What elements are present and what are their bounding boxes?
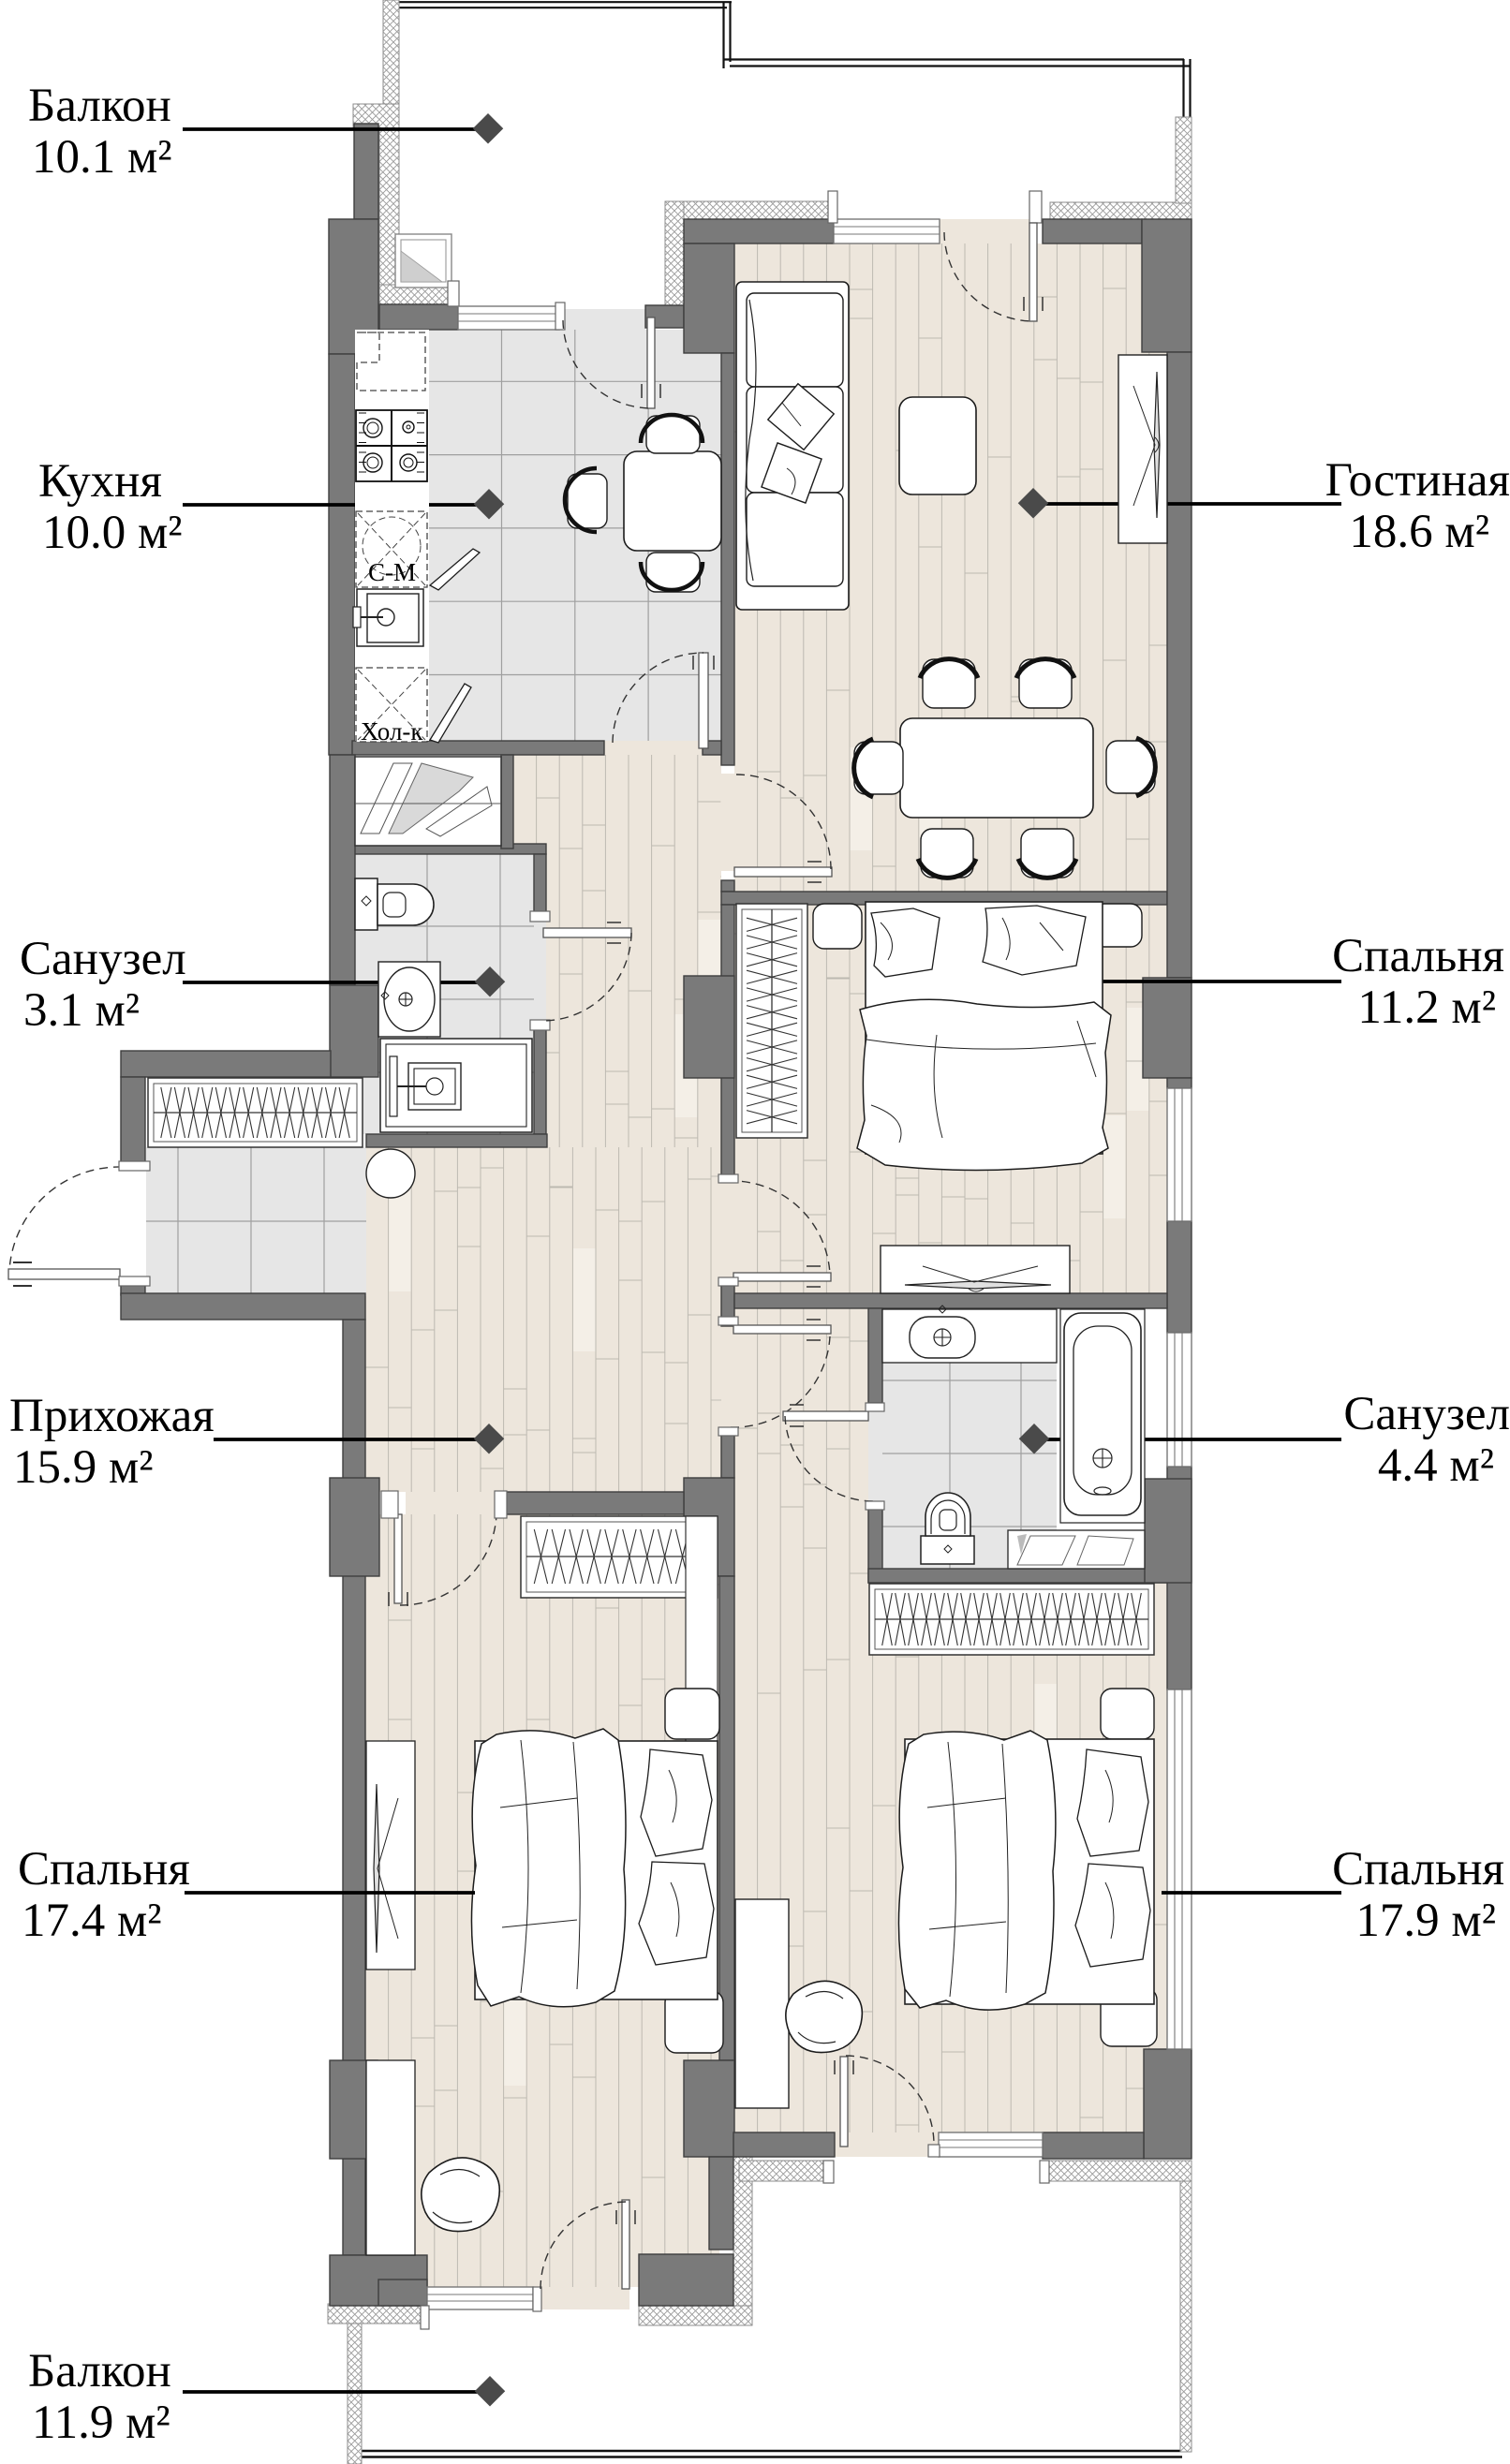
svg-text:18.6 м²: 18.6 м² [1349, 506, 1489, 558]
svg-text:4.4 м²: 4.4 м² [1378, 1439, 1494, 1492]
svg-text:Балкон: Балкон [28, 2345, 171, 2398]
svg-text:Санузел: Санузел [20, 933, 186, 985]
svg-text:Гостиная: Гостиная [1325, 454, 1510, 507]
svg-text:Спальня: Спальня [18, 1843, 190, 1896]
svg-text:17.9 м²: 17.9 м² [1355, 1895, 1496, 1947]
svg-text:11.2 м²: 11.2 м² [1357, 981, 1496, 1034]
svg-text:С-М: С-М [368, 558, 416, 586]
svg-text:11.9 м²: 11.9 м² [32, 2397, 170, 2449]
svg-text:Спальня: Спальня [1332, 1843, 1504, 1896]
svg-text:10.1 м²: 10.1 м² [32, 131, 172, 184]
svg-text:3.1 м²: 3.1 м² [23, 984, 140, 1037]
svg-text:Хол-к: Хол-к [361, 717, 423, 745]
svg-text:Санузел: Санузел [1343, 1388, 1510, 1440]
svg-text:Балкон: Балкон [28, 80, 171, 132]
svg-text:Кухня: Кухня [38, 455, 162, 508]
svg-text:17.4 м²: 17.4 м² [22, 1895, 162, 1947]
svg-text:Спальня: Спальня [1332, 930, 1504, 982]
svg-text:10.0 м²: 10.0 м² [42, 507, 183, 559]
svg-text:Прихожая: Прихожая [9, 1390, 215, 1442]
svg-text:15.9 м²: 15.9 м² [13, 1441, 154, 1494]
